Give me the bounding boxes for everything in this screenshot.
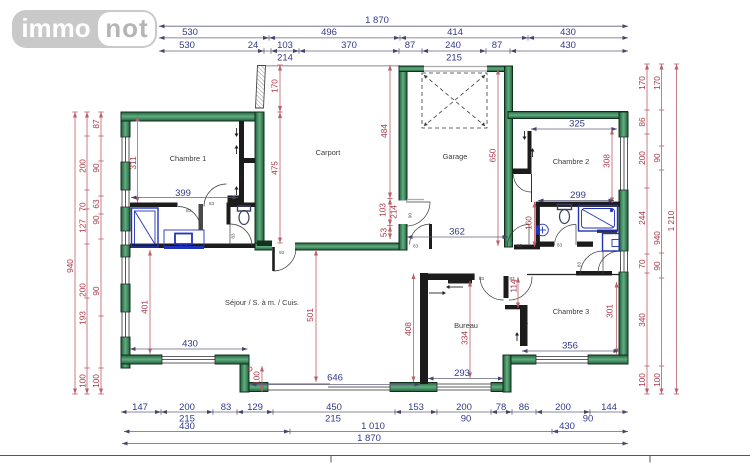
- svg-text:430: 430: [179, 421, 195, 432]
- svg-text:86: 86: [637, 117, 647, 127]
- svg-text:87: 87: [91, 119, 101, 129]
- svg-text:immo: immo: [21, 13, 90, 43]
- svg-text:325: 325: [569, 119, 585, 130]
- svg-text:Séjour / S. à m. / Cuis.: Séjour / S. à m. / Cuis.: [225, 298, 299, 307]
- svg-text:90: 90: [408, 213, 413, 219]
- svg-text:408: 408: [403, 322, 413, 336]
- svg-text:530: 530: [182, 27, 198, 38]
- svg-text:214: 214: [277, 53, 293, 64]
- svg-text:Chambre 1: Chambre 1: [170, 154, 207, 163]
- svg-text:127: 127: [78, 219, 88, 233]
- svg-text:83: 83: [557, 243, 563, 248]
- svg-text:370: 370: [341, 40, 357, 51]
- svg-text:193: 193: [78, 311, 88, 325]
- svg-text:170: 170: [270, 79, 280, 93]
- svg-text:90: 90: [652, 261, 662, 271]
- svg-text:100: 100: [637, 373, 647, 387]
- svg-text:646: 646: [327, 373, 343, 384]
- svg-text:100: 100: [78, 374, 88, 388]
- svg-text:475: 475: [270, 161, 280, 175]
- svg-text:200: 200: [637, 151, 647, 165]
- svg-text:496: 496: [321, 27, 337, 38]
- svg-text:100: 100: [91, 374, 101, 388]
- svg-text:311: 311: [128, 156, 138, 170]
- svg-text:not: not: [105, 13, 148, 43]
- svg-text:301: 301: [605, 304, 615, 318]
- svg-text:Bureau: Bureau: [454, 321, 478, 330]
- svg-text:650: 650: [488, 148, 498, 162]
- svg-text:147: 147: [132, 402, 148, 413]
- svg-text:70: 70: [78, 202, 88, 212]
- svg-text:Chambre 2: Chambre 2: [553, 157, 590, 166]
- svg-text:24: 24: [248, 40, 259, 51]
- svg-text:170: 170: [652, 76, 662, 90]
- svg-text:299: 299: [570, 190, 586, 201]
- svg-text:103: 103: [277, 40, 293, 51]
- svg-text:940: 940: [652, 231, 662, 245]
- svg-text:414: 414: [447, 27, 463, 38]
- svg-text:356: 356: [562, 341, 578, 352]
- svg-text:430: 430: [559, 421, 575, 432]
- svg-text:501: 501: [305, 308, 315, 322]
- svg-text:240: 240: [445, 40, 461, 51]
- svg-text:86: 86: [519, 402, 530, 413]
- svg-text:100: 100: [652, 373, 662, 387]
- svg-text:83: 83: [221, 402, 232, 413]
- svg-text:63: 63: [91, 199, 101, 209]
- svg-text:90: 90: [91, 215, 101, 225]
- svg-text:308: 308: [602, 154, 612, 168]
- svg-text:170: 170: [637, 76, 647, 90]
- svg-text:244: 244: [637, 211, 647, 225]
- svg-text:70: 70: [637, 259, 647, 269]
- svg-text:215: 215: [446, 53, 462, 64]
- svg-text:401: 401: [140, 300, 150, 314]
- svg-text:450: 450: [326, 402, 342, 413]
- svg-text:484: 484: [379, 124, 389, 138]
- svg-text:90: 90: [91, 286, 101, 296]
- svg-text:334: 334: [460, 331, 470, 345]
- svg-text:90: 90: [461, 413, 472, 424]
- svg-text:530: 530: [179, 40, 195, 51]
- svg-text:83: 83: [577, 262, 582, 268]
- svg-text:200: 200: [179, 402, 195, 413]
- svg-text:90: 90: [652, 153, 662, 163]
- svg-text:144: 144: [601, 402, 617, 413]
- svg-text:78: 78: [496, 402, 507, 413]
- svg-text:215: 215: [325, 413, 341, 424]
- svg-text:87: 87: [405, 40, 416, 51]
- svg-text:90: 90: [91, 163, 101, 173]
- svg-text:87: 87: [492, 40, 503, 51]
- svg-text:1 010: 1 010: [361, 421, 385, 432]
- svg-text:93: 93: [279, 250, 285, 255]
- svg-text:53: 53: [379, 228, 389, 238]
- svg-text:83: 83: [517, 243, 523, 248]
- svg-text:1 210: 1 210: [666, 210, 676, 231]
- svg-text:83: 83: [186, 208, 192, 213]
- svg-text:83: 83: [479, 276, 485, 281]
- svg-text:214: 214: [389, 205, 399, 219]
- svg-text:430: 430: [182, 339, 198, 350]
- svg-text:200: 200: [456, 402, 472, 413]
- svg-text:430: 430: [560, 40, 576, 51]
- svg-text:340: 340: [637, 313, 647, 327]
- svg-text:83: 83: [209, 201, 215, 206]
- svg-text:362: 362: [449, 227, 465, 238]
- svg-text:1 870: 1 870: [357, 433, 381, 444]
- svg-text:200: 200: [555, 402, 571, 413]
- svg-text:940: 940: [65, 259, 75, 273]
- svg-text:200: 200: [78, 283, 88, 297]
- svg-text:153: 153: [408, 402, 424, 413]
- svg-text:399: 399: [175, 188, 191, 199]
- svg-text:1 870: 1 870: [365, 15, 389, 26]
- svg-text:90: 90: [583, 413, 594, 424]
- svg-text:103: 103: [378, 203, 388, 217]
- svg-text:200: 200: [78, 159, 88, 173]
- svg-text:114: 114: [509, 279, 519, 293]
- svg-text:100: 100: [252, 371, 262, 385]
- svg-text:129: 129: [247, 402, 263, 413]
- svg-text:Garage: Garage: [443, 152, 468, 161]
- svg-text:83: 83: [413, 244, 419, 249]
- svg-text:430: 430: [560, 27, 576, 38]
- svg-text:160: 160: [524, 216, 534, 230]
- svg-text:Chambre 3: Chambre 3: [553, 307, 590, 316]
- svg-text:Carport: Carport: [316, 148, 341, 157]
- svg-text:83: 83: [231, 233, 236, 239]
- svg-text:293: 293: [454, 368, 470, 379]
